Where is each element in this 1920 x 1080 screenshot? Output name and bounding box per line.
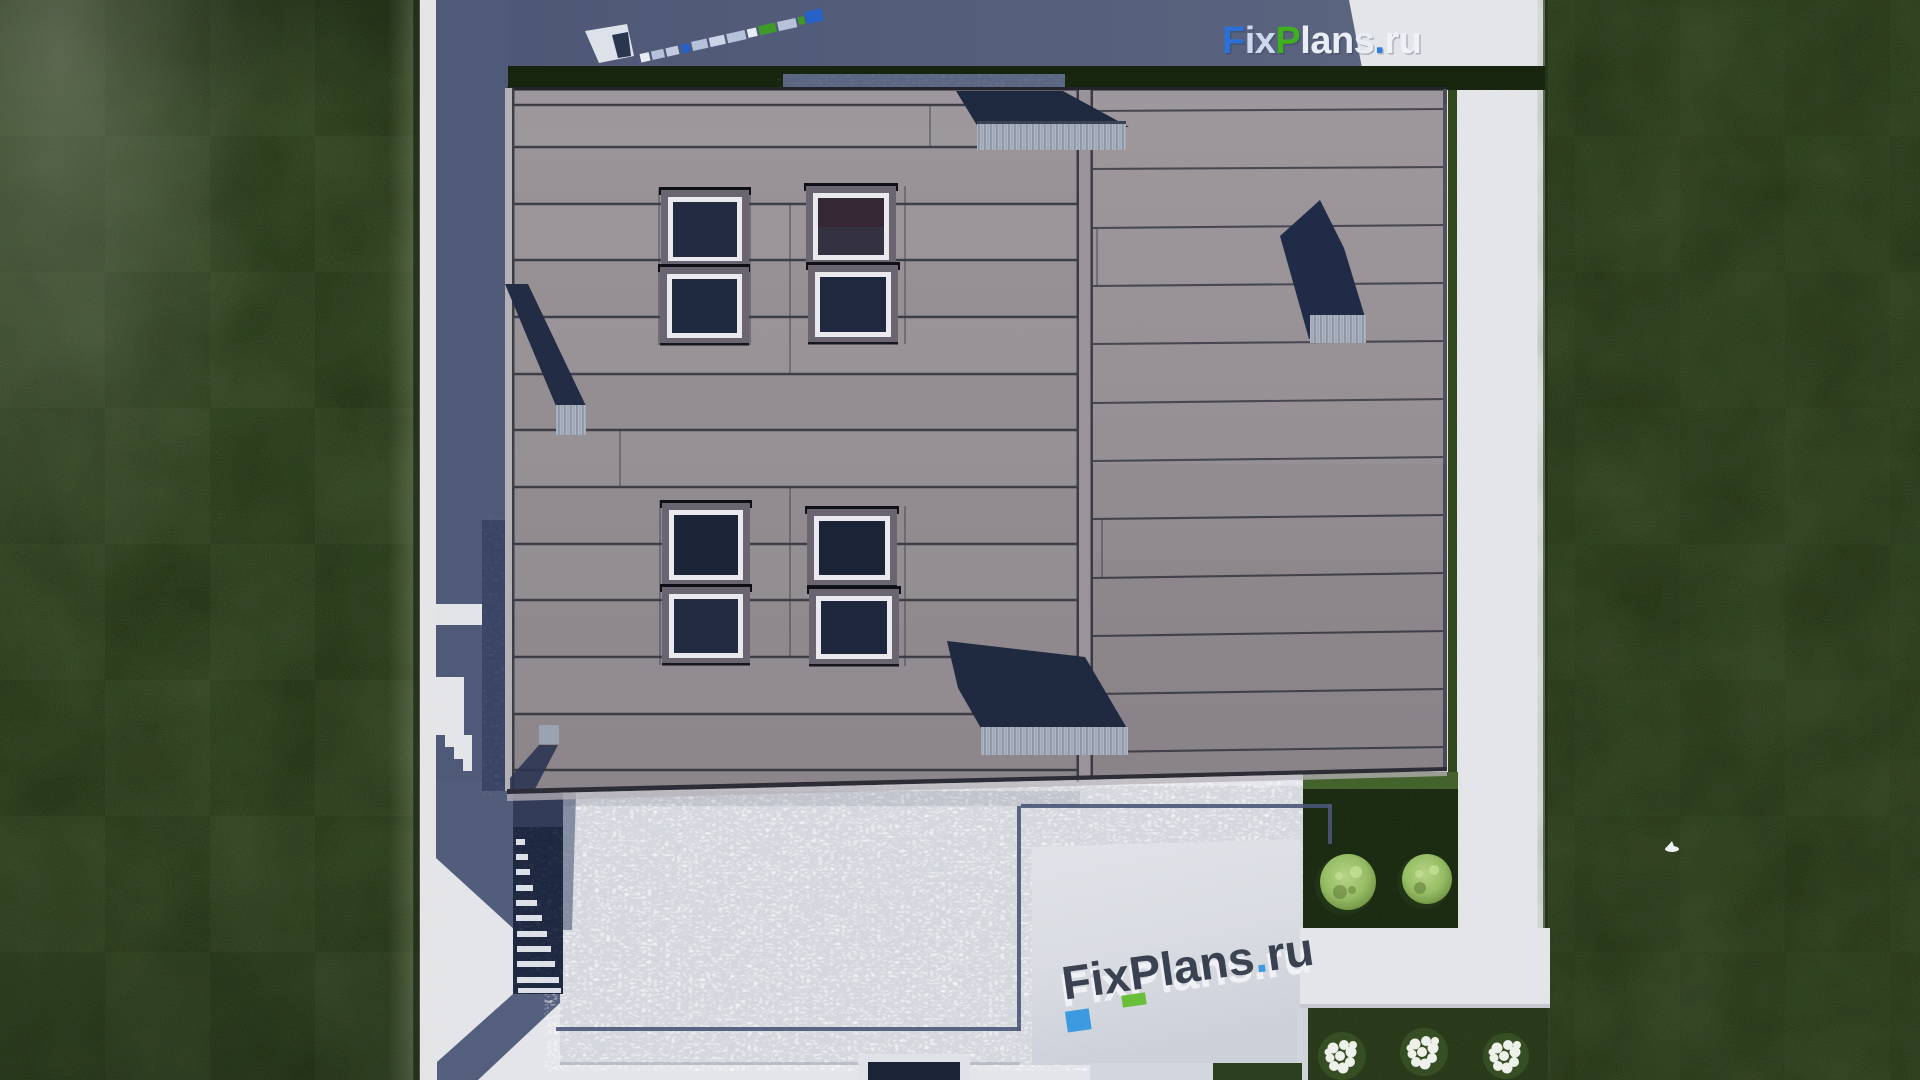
svg-text:FixPlans.ru: FixPlans.ru — [1222, 20, 1421, 62]
